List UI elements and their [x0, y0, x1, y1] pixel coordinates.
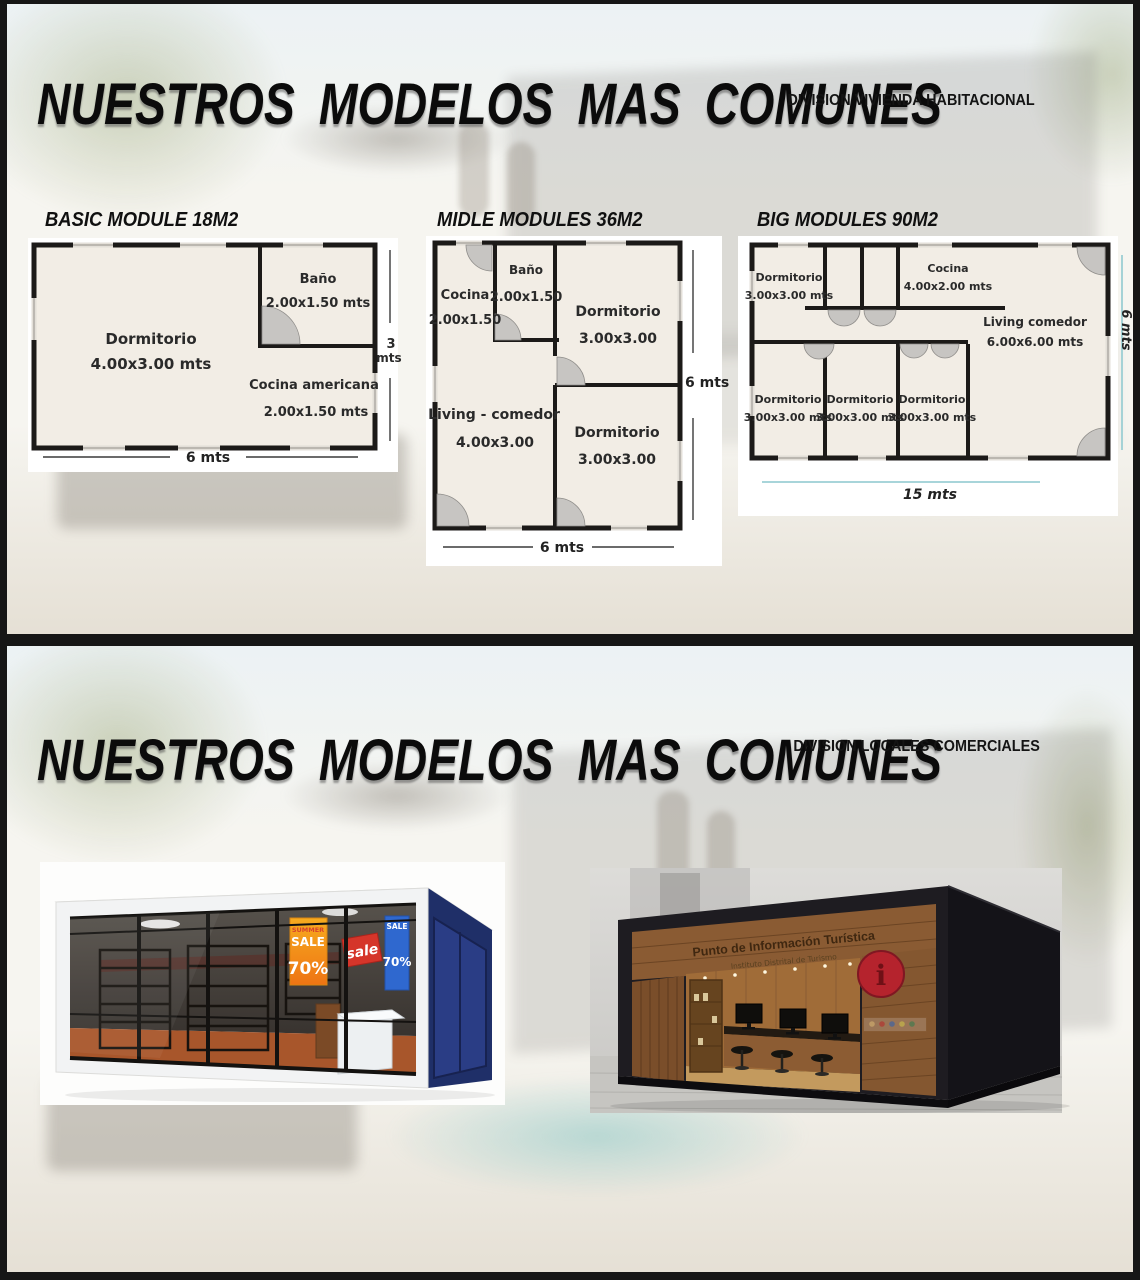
room-dims: 2.00x1.50 mts — [266, 296, 371, 311]
poster-mid-text: SALE — [291, 935, 325, 949]
dimension-width: 6 mts — [443, 540, 674, 556]
room-dims: 4.00x3.00 mts — [91, 355, 212, 373]
room-label: Dormitorio — [756, 271, 823, 284]
page-title: NUESTROS MODELOS MAS COMUNES — [37, 727, 942, 794]
kiosk-interior — [686, 958, 860, 1092]
room-label: Dormitorio — [105, 330, 196, 348]
bg-tree-right — [1027, 4, 1133, 184]
room-label: Cocina — [441, 288, 490, 303]
room-dims: 2.00x1.50 — [490, 290, 563, 305]
room-label: Cocina americana — [249, 378, 379, 393]
floorplan-big: Dormitorio 3.00x3.00 mts Cocina 4.00x2.0… — [738, 236, 1130, 516]
poster-top-text: SUMMER — [292, 926, 324, 934]
width-dim-label: 6 mts — [540, 540, 584, 556]
room-dims: 3.00x3.00 mts — [745, 289, 834, 302]
dimension-height: 6 mts — [1118, 255, 1133, 450]
division-subtitle: DIVISION VIVIENDA HABITACIONAL — [788, 92, 1035, 110]
room-label: Dormitorio — [574, 425, 660, 441]
room-label: Living comedor — [983, 315, 1087, 329]
info-logo-letter: i — [876, 959, 887, 992]
plan-heading-big: BIG MODULES 90M2 — [757, 209, 938, 232]
room-dims: 3.00x3.00 — [578, 452, 656, 468]
dimension-width: 6 mts — [43, 450, 358, 466]
slide-locales: NUESTROS MODELOS MAS COMUNES DIVISION LO… — [7, 646, 1133, 1272]
photo-tourist-kiosk: Punto de Información Turística Instituto… — [590, 868, 1062, 1113]
room-label: Baño — [509, 263, 543, 277]
floorplan-basic: Dormitorio 4.00x3.00 mts Baño 2.00x1.50 … — [28, 238, 398, 472]
brochure-page: NUESTROS MODELOS MAS COMUNES DIVISION VI… — [0, 0, 1140, 1280]
height-dim-label: 6 mts — [685, 375, 729, 391]
room-label: Cocina — [927, 262, 968, 275]
floorplan-midle: Cocina 2.00x1.50 Baño 2.00x1.50 Dormitor… — [426, 236, 722, 566]
room-dims: 2.00x1.50 mts — [264, 405, 369, 420]
kiosk-logo-panel: i — [858, 948, 936, 1096]
room-dims: 3.00x3.00 — [579, 331, 657, 347]
dimension-height: 3 mts — [376, 250, 401, 441]
division-subtitle: DIVISION LOCALES COMERCIALES — [794, 738, 1040, 756]
plan-heading-basic: BASIC MODULE 18M2 — [45, 209, 238, 232]
width-dim-label: 6 mts — [186, 450, 230, 466]
kiosk-door-panel — [632, 976, 684, 1082]
plan-heading-midle: MIDLE MODULES 36M2 — [437, 209, 642, 232]
tourist-kiosk-photo: Punto de Información Turística Instituto… — [590, 868, 1062, 1113]
room-label: Dormitorio — [575, 304, 661, 320]
cash-cabinet — [316, 1004, 340, 1058]
floorplan-midle-panel: Cocina 2.00x1.50 Baño 2.00x1.50 Dormitor… — [426, 236, 722, 566]
dimension-height: 6 mts — [685, 250, 729, 520]
room-label: Dormitorio — [899, 393, 966, 406]
room-label: Dormitorio — [755, 393, 822, 406]
room-label: Dormitorio — [827, 393, 894, 406]
floorplan-big-panel: Dormitorio 3.00x3.00 mts Cocina 4.00x2.0… — [738, 236, 1130, 516]
height-dim-value: 3 — [386, 337, 395, 352]
room-dims: 3.00x3.00 mts — [888, 411, 977, 424]
width-dim-label: 15 mts — [903, 487, 957, 503]
room-dims: 4.00x3.00 — [456, 435, 534, 451]
banner-pct-text: 70% — [383, 955, 412, 969]
room-dims: 2.00x1.50 — [429, 313, 502, 328]
banner-top-text: SALE — [386, 922, 407, 931]
room-dims: 6.00x6.00 mts — [987, 335, 1084, 349]
room-dims: 4.00x2.00 mts — [904, 280, 993, 293]
floorplan-basic-panel: Dormitorio 4.00x3.00 mts Baño 2.00x1.50 … — [28, 238, 398, 472]
slide-vivienda: NUESTROS MODELOS MAS COMUNES DIVISION VI… — [7, 4, 1133, 634]
room-label: Baño — [300, 272, 337, 287]
shadow — [65, 1088, 495, 1102]
container-shop-render: SUMMER SALE 70% sale SALE 70% — [40, 862, 505, 1105]
summer-sale-poster: SUMMER SALE 70% — [288, 918, 329, 985]
room-label: Living - comedor — [428, 407, 560, 423]
poster-pct-text: 70% — [288, 959, 329, 979]
height-dim-unit: mts — [376, 351, 401, 365]
shadow — [610, 1099, 1070, 1113]
photo-container-shop: SUMMER SALE 70% sale SALE 70% — [40, 862, 505, 1105]
height-dim-label: 6 mts — [1118, 309, 1133, 350]
ceiling-light — [322, 908, 358, 916]
sale-banner: SALE 70% — [383, 916, 412, 990]
